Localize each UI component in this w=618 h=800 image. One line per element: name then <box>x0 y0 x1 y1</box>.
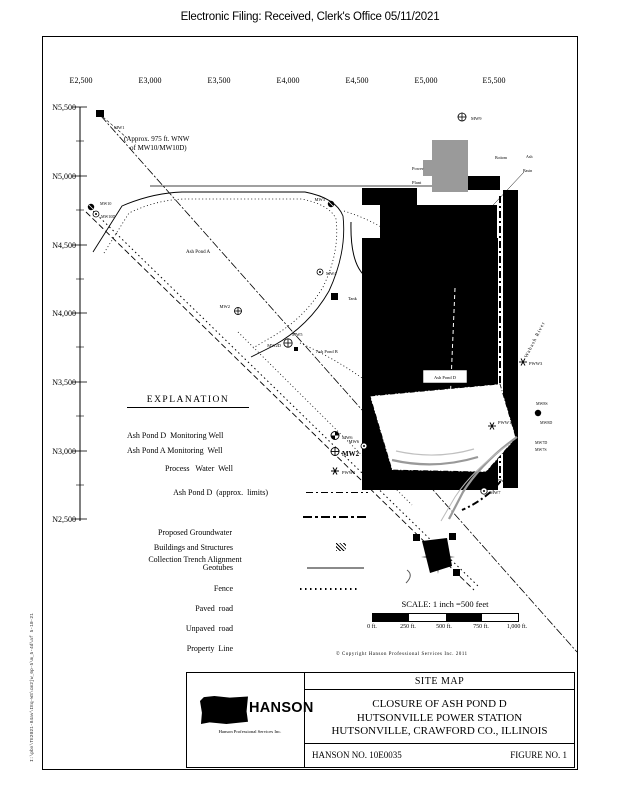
scale-bar <box>372 613 519 622</box>
well-mw9: MW9 <box>458 113 483 122</box>
legend-label: Ash Pond D (approx. limits) <box>127 488 268 497</box>
plot-stamp: I:\pbx\TE2021-84av\IEq-WS\cm2jw_6p-5\m_5… <box>30 430 35 762</box>
legend-label: Ash Pond D Monitoring Well <box>127 431 223 440</box>
svg-text:MW2: MW2 <box>220 304 231 309</box>
tank-structure <box>331 293 338 300</box>
well-mw10: MW10 <box>88 201 112 210</box>
legend-label: Paved road <box>115 604 233 613</box>
svg-text:MW8D: MW8D <box>540 420 552 425</box>
legend-label: Ash Pond A Monitoring Well <box>127 446 222 455</box>
scale-title: SCALE: 1 inch =500 feet <box>372 599 518 609</box>
title-block-bottom-row: HANSON NO. 10E0035 FIGURE NO. 1 <box>305 744 574 767</box>
project-number: HANSON NO. 10E0035 <box>312 744 402 767</box>
ash-pond-b-label: Ash Pond B <box>316 349 338 354</box>
svg-text:MW5: MW5 <box>292 332 303 337</box>
power-plant-building <box>423 140 468 192</box>
svg-text:MW10D: MW10D <box>101 214 115 219</box>
legend-label: Fence <box>115 584 233 593</box>
svg-text:MW3: MW3 <box>315 197 326 202</box>
svg-text:of MW10/MW10D): of MW10/MW10D) <box>130 144 187 152</box>
tank-label: Tank <box>348 296 358 301</box>
trench-line-symbol <box>303 516 369 518</box>
svg-text:MW8S: MW8S <box>536 401 548 406</box>
north-arrow-compass <box>413 533 460 576</box>
title-block-logo-cell: HANSON Hanson Professional Services Inc. <box>187 673 305 767</box>
drawing-type-title: SITE MAP <box>305 673 574 690</box>
bottom-ash-label-1: Bottom <box>495 155 508 160</box>
svg-text:MW7: MW7 <box>490 490 501 495</box>
scale-tick: 500 ft. <box>436 624 452 630</box>
well-mw10d: MW10D <box>93 211 115 219</box>
hanson-logo-subtext: Hanson Professional Services Inc. <box>195 729 305 734</box>
process-water-well-symbol: PWW2 <box>330 463 355 481</box>
scale-tick: 250 ft. <box>400 624 416 630</box>
wabash-river-label: Wabash River <box>524 321 547 359</box>
legend-label: Process Water Well <box>127 464 233 473</box>
svg-text:(Approx. 975 ft. WNW: (Approx. 975 ft. WNW <box>124 135 190 143</box>
ash-pond-d-label: Ash Pond D <box>434 375 457 380</box>
drawing-title-line1: CLOSURE OF ASH POND D <box>305 698 574 712</box>
title-block-text-cell: SITE MAP CLOSURE OF ASH POND D HUTSONVIL… <box>305 673 574 767</box>
scale-tick: 0 ft. <box>367 624 377 630</box>
pond-a-monitoring-well-symbol: MW2 <box>330 444 359 462</box>
copyright-note: © Copyright Hanson Professional Services… <box>336 652 468 657</box>
bottom-ash-label-3: Basin <box>523 168 532 173</box>
legend-symbol-label: MW2 <box>342 450 359 458</box>
title-block: HANSON Hanson Professional Services Inc.… <box>186 672 575 768</box>
svg-text:MW2D: MW2D <box>267 343 281 348</box>
svg-text:MW10: MW10 <box>100 201 111 206</box>
legend-label: Property Line <box>115 644 233 653</box>
svg-text:PWW2: PWW2 <box>497 478 510 483</box>
drawing-title-line3: HUTSONVILLE, CRAWFORD CO., ILLINOIS <box>305 725 574 739</box>
well-pww3: PWW3 <box>519 359 543 367</box>
power-plant-label-2: Plant <box>412 180 422 185</box>
svg-text:MW4: MW4 <box>326 271 337 276</box>
scale-tick: 1,000 ft. <box>507 624 527 630</box>
legend-label: Buildings and Structures <box>115 543 233 552</box>
fence-line-symbol <box>300 588 357 590</box>
well-mw5-cluster: MW5 MW2D <box>267 332 303 351</box>
legend-title: EXPLANATION <box>127 395 249 408</box>
legend-symbol-label: PWW2 <box>342 470 355 475</box>
legend-label: Unpaved road <box>115 624 233 633</box>
well-mw3: MW3 <box>315 197 335 207</box>
figure-page: Electronic Filing: Received, Clerk's Off… <box>0 0 618 800</box>
pond-limits-line-symbol <box>306 492 368 493</box>
svg-text:MW7S: MW7S <box>535 447 547 452</box>
figure-number: FIGURE NO. 1 <box>510 744 567 767</box>
mw1-note: (Approx. 975 ft. WNW of MW10/MW10D) <box>124 135 190 152</box>
svg-text:PWW3: PWW3 <box>529 361 543 366</box>
geotubes-line-symbol <box>307 567 364 569</box>
drawing-title: CLOSURE OF ASH POND D HUTSONVILLE POWER … <box>305 690 574 744</box>
svg-text:MW9: MW9 <box>471 116 482 121</box>
svg-text:MW1: MW1 <box>114 125 125 130</box>
buildings-symbol <box>336 543 346 551</box>
well-mw2: MW2 <box>220 304 243 315</box>
well-mw4: MW4 <box>317 269 337 276</box>
legend-label: Geotubes <box>115 563 233 572</box>
hanson-logo-text: HANSON <box>249 700 314 716</box>
bottom-ash-label-2: Ash <box>526 154 532 159</box>
drawing-title-line2: HUTSONVILLE POWER STATION <box>305 712 574 726</box>
scale-tick: 750 ft. <box>473 624 489 630</box>
hanson-logo-icon <box>200 696 248 724</box>
power-plant-label-1: Power <box>412 166 424 171</box>
north-axis <box>73 107 87 521</box>
legend-symbol-label: MW6 <box>342 435 353 440</box>
svg-text:MW7D: MW7D <box>535 440 547 445</box>
well-mw8-cluster: MW8S MW8D MW7D MW7S <box>535 401 553 452</box>
ash-pond-a-label: Ash Pond A <box>186 250 211 255</box>
svg-text:PWW1: PWW1 <box>498 420 511 425</box>
